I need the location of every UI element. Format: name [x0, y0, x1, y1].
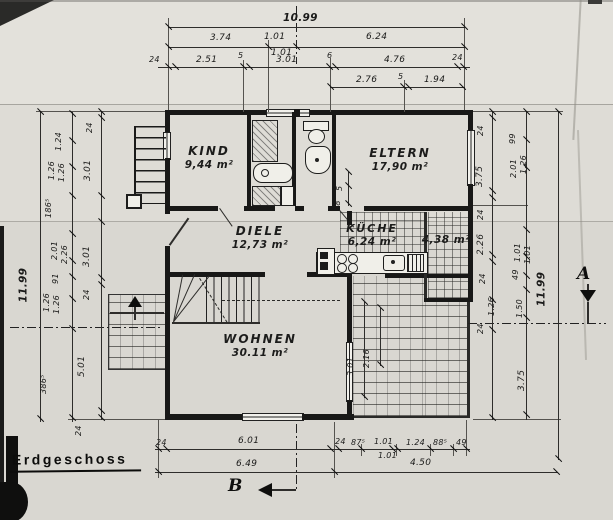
- dim-label: 1.01: [378, 452, 397, 460]
- scan-mark-topright: [588, 0, 602, 4]
- dim-line: [155, 449, 470, 450]
- section-line-b-bottom: [296, 424, 297, 490]
- window: [467, 130, 475, 186]
- dim-label: 24: [86, 122, 94, 133]
- bath-cabinet-2: [281, 186, 294, 206]
- dim-label: 4.76: [384, 56, 405, 65]
- room-area: 30.11 m²: [204, 347, 316, 360]
- headroom-dashed-line: [222, 300, 340, 301]
- dim-label: 1.26: [520, 155, 528, 174]
- wall: [165, 110, 473, 115]
- dim-label: 1.01: [514, 243, 522, 262]
- section-marker-b: B: [228, 478, 242, 495]
- shower-cabinet: [252, 120, 278, 162]
- witness-line: [168, 18, 169, 110]
- dim-label: 3.01: [347, 357, 355, 376]
- wall: [424, 298, 470, 302]
- dim-label: 1.01: [264, 33, 285, 42]
- dish-rack: [407, 254, 424, 272]
- stove-burner: [348, 263, 358, 273]
- dim-label: 3.01: [276, 56, 297, 65]
- dim-line: [380, 308, 381, 366]
- dim-label: 5.01: [78, 356, 87, 377]
- entrance-pier: [126, 194, 142, 209]
- room-label-kammer: 4,38 m²: [420, 234, 472, 247]
- dim-label: 1.94: [424, 76, 445, 85]
- dim-label: 1.50: [516, 299, 524, 318]
- section-arrow-a: [580, 290, 596, 302]
- dim-label: 2.01: [51, 241, 59, 260]
- dim-label: 24: [452, 54, 463, 62]
- steps-edge: [134, 307, 136, 320]
- dim-label: 386⁵: [40, 374, 48, 394]
- section-arrow-b-line: [272, 489, 296, 491]
- room-label-eltern: ELTERN 17,90 m²: [332, 146, 468, 174]
- dim-label: 24: [156, 439, 167, 447]
- window: [242, 413, 304, 421]
- scan-wrinkle-right2: [577, 130, 587, 360]
- witness-line: [68, 419, 165, 420]
- window: [266, 109, 310, 117]
- dim-label: 5: [336, 186, 344, 191]
- dim-line: [330, 87, 465, 88]
- wall: [468, 110, 473, 130]
- dim-line: [158, 67, 470, 68]
- room-label-kueche: KÜCHE 6,24 m²: [332, 222, 412, 249]
- scan-corner-mark: [0, 0, 54, 26]
- dim-label: 3.01: [84, 160, 93, 181]
- scan-top-edge: [0, 0, 613, 2]
- dim-label: 87⁵: [351, 439, 365, 447]
- bathtub-drain: [261, 169, 269, 177]
- terrace-edge: [354, 416, 470, 418]
- dim-line: [168, 27, 465, 28]
- room-name: KIND: [168, 144, 250, 159]
- dim-label: 2.16: [363, 349, 371, 368]
- witness-line: [473, 205, 528, 206]
- dim-label: 24: [479, 273, 487, 284]
- dim-label: 5: [398, 73, 403, 81]
- dim-line: [168, 47, 465, 48]
- dim-label: 6: [327, 52, 332, 60]
- section-line-a-right: [468, 323, 606, 324]
- room-label-diele: DIELE 12,73 m²: [218, 224, 302, 252]
- dim-line: [101, 112, 102, 420]
- dim-line: [558, 112, 559, 460]
- dim-label: 24: [75, 425, 83, 436]
- witness-line: [473, 419, 561, 420]
- dim-label: 6.01: [238, 437, 259, 446]
- dim-label: 1.26: [43, 293, 51, 312]
- scan-crease-1: [0, 104, 613, 105]
- dim-label: 3.75: [518, 370, 527, 391]
- scan-wrinkle-right: [572, 0, 581, 140]
- steps-edge2: [110, 312, 164, 314]
- bathtub: [253, 163, 293, 183]
- dim-label: 1.24: [406, 439, 425, 447]
- entrance-stair: [134, 126, 166, 204]
- toilet-bowl: [308, 129, 325, 144]
- dim-label: 3.01: [83, 246, 92, 267]
- room-name: DIELE: [218, 224, 302, 239]
- scan-left-blob: [0, 482, 28, 520]
- dim-label: 3.74: [210, 34, 231, 43]
- dim-label: 2.51: [196, 56, 217, 65]
- dim-label: 6.49: [236, 460, 257, 469]
- section-marker-a: A: [577, 266, 590, 283]
- section-line-a-left: [10, 327, 163, 328]
- witness-line: [464, 18, 465, 110]
- dim-line: [72, 112, 73, 422]
- dim-label: 6.24: [366, 33, 387, 42]
- dim-label: 49: [512, 269, 520, 280]
- dim-label: 2.76: [356, 76, 377, 85]
- section-arrow-a-line2: [587, 302, 589, 323]
- wall: [165, 206, 218, 211]
- room-area: 12,73 m²: [218, 239, 302, 252]
- dim-label: 1.01: [374, 438, 393, 446]
- scan-crease-2: [0, 221, 613, 222]
- witness-line: [268, 40, 269, 112]
- dim-label: 2.26: [477, 234, 486, 255]
- dim-label: 186⁵: [45, 198, 53, 218]
- stove-burner: [337, 263, 347, 273]
- section-arrow-b: [258, 483, 272, 497]
- dim-label: 1.24: [55, 132, 63, 151]
- dim-label: 24: [335, 438, 346, 446]
- room-area: 17,90 m²: [332, 161, 468, 174]
- dim-label: 1.26: [53, 295, 61, 314]
- sink-drain: [391, 260, 395, 264]
- dim-label: 88⁵: [433, 439, 447, 447]
- wall: [165, 414, 242, 420]
- room-name: WOHNEN: [204, 332, 316, 347]
- dim-label: 88: [334, 200, 342, 211]
- dim-label: 1.26: [58, 163, 66, 182]
- dim-label: 1.26: [48, 161, 56, 180]
- wall: [295, 206, 304, 211]
- washbasin-drain: [315, 158, 319, 162]
- page-title: Erdgeschoss: [10, 451, 142, 472]
- dim-label: 24: [149, 56, 160, 64]
- wall: [244, 206, 275, 211]
- dim-label: 5: [238, 52, 243, 60]
- kammer-tile-floor: [428, 212, 468, 298]
- room-area: 6,24 m²: [332, 236, 412, 249]
- dim-label: 49: [456, 439, 467, 447]
- dim-label: 3.75: [476, 166, 485, 187]
- steps-direction-arrow: [128, 296, 142, 307]
- room-name: ELTERN: [332, 146, 468, 161]
- wall: [364, 206, 470, 211]
- dim-label: 99: [509, 133, 517, 144]
- dim-label: 2.01: [510, 159, 518, 178]
- wall: [467, 302, 470, 418]
- dim-label: 2.26: [61, 245, 69, 264]
- dim-label: 24: [477, 125, 485, 136]
- dim-label: 24: [477, 323, 485, 334]
- dim-label: 91: [52, 273, 60, 284]
- dim-label: 10.99: [283, 13, 318, 24]
- room-label-kind: KIND 9,44 m²: [168, 144, 250, 172]
- appliance-mark: [320, 262, 328, 270]
- wall: [347, 400, 352, 415]
- witness-line: [473, 111, 563, 112]
- dim-label: 1.01: [524, 245, 532, 264]
- wall: [347, 277, 352, 342]
- dim-label: 11.99: [537, 272, 548, 307]
- dim-line: [492, 112, 493, 420]
- dim-label: 4.50: [410, 459, 431, 468]
- room-label-wohnen: WOHNEN 30.11 m²: [204, 332, 316, 360]
- appliance-mark: [320, 252, 328, 259]
- dim-line: [155, 472, 558, 473]
- dim-label: 1.26: [488, 297, 496, 316]
- dim-label: 11.99: [19, 268, 30, 303]
- dim-label: 24: [83, 289, 91, 300]
- dim-label: 24: [477, 209, 485, 220]
- floor-plan-sheet: 10.99 3.74 1.01 1.01 6.24 24 2.51 5 3.01…: [0, 0, 613, 520]
- dim-line: [348, 172, 349, 206]
- room-name: KÜCHE: [332, 222, 412, 236]
- room-area: 9,44 m²: [168, 159, 250, 172]
- bath-cabinet: [252, 186, 281, 206]
- room-area: 4,38 m²: [420, 234, 472, 247]
- stair-edge: [172, 322, 260, 324]
- scan-left-edge: [0, 226, 4, 520]
- terrace-brick-floor-2: [425, 302, 468, 416]
